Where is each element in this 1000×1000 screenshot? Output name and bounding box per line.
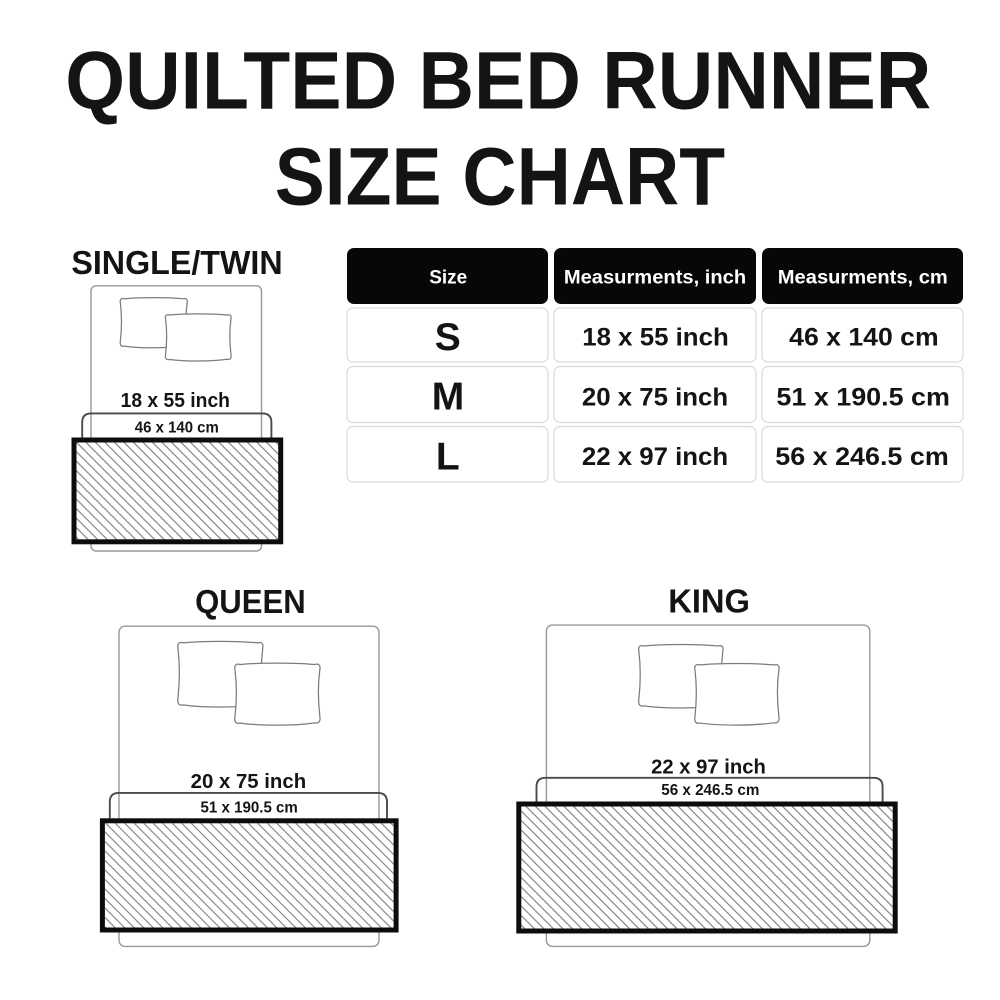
svg-text:51 x 190.5 cm: 51 x 190.5 cm	[201, 800, 298, 817]
svg-text:46 x 140 cm: 46 x 140 cm	[135, 419, 219, 436]
svg-text:20 x 75 inch: 20 x 75 inch	[191, 771, 307, 793]
svg-text:18 x 55 inch: 18 x 55 inch	[582, 324, 729, 352]
svg-text:56 x 246.5 cm: 56 x 246.5 cm	[775, 443, 949, 471]
svg-text:Measurments, inch: Measurments, inch	[564, 268, 746, 289]
svg-text:KING: KING	[668, 583, 750, 620]
svg-text:Size: Size	[429, 268, 467, 289]
svg-text:S: S	[435, 316, 461, 359]
svg-text:M: M	[432, 375, 465, 418]
svg-text:18 x 55 inch: 18 x 55 inch	[121, 390, 230, 412]
svg-text:SINGLE/TWIN: SINGLE/TWIN	[71, 244, 282, 281]
svg-text:20 x 75 inch: 20 x 75 inch	[582, 384, 728, 412]
svg-text:56 x 246.5 cm: 56 x 246.5 cm	[661, 782, 759, 799]
svg-text:22 x 97 inch: 22 x 97 inch	[582, 443, 728, 471]
svg-text:Measurments, cm: Measurments, cm	[778, 268, 948, 289]
svg-text:SIZE CHART: SIZE CHART	[275, 132, 725, 223]
svg-text:QUILTED BED RUNNER: QUILTED BED RUNNER	[65, 36, 931, 127]
svg-text:L: L	[436, 435, 460, 478]
svg-text:QUEEN: QUEEN	[195, 583, 306, 620]
svg-text:46 x 140 cm: 46 x 140 cm	[789, 324, 939, 352]
svg-text:22 x 97 inch: 22 x 97 inch	[651, 757, 766, 779]
svg-text:51 x 190.5 cm: 51 x 190.5 cm	[776, 384, 950, 412]
